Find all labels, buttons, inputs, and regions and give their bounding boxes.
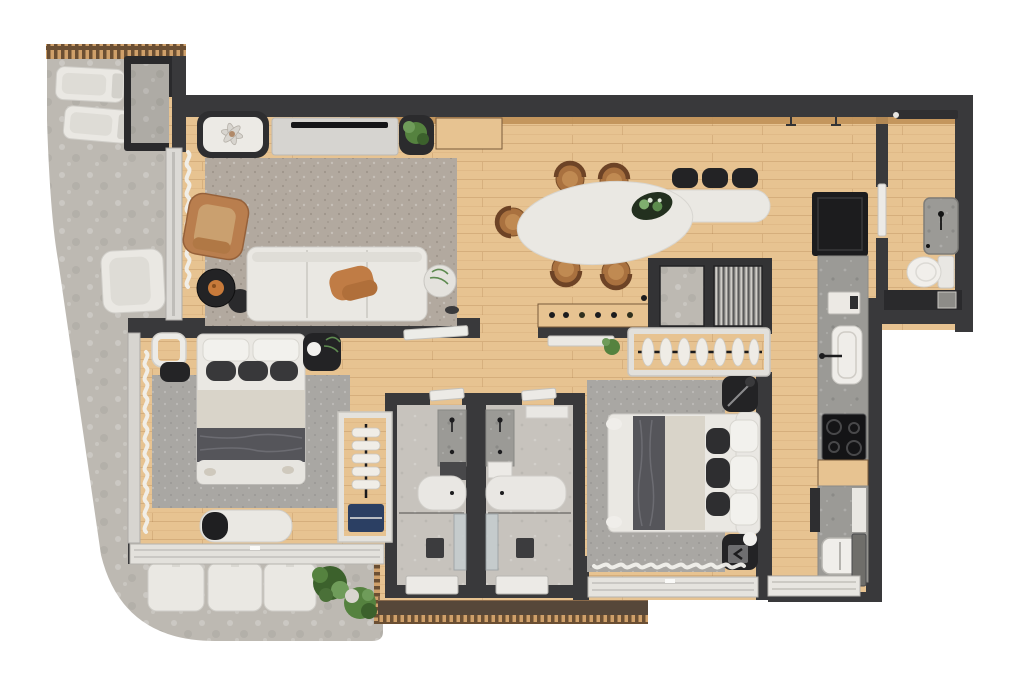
bedroom1-bed [197, 334, 305, 484]
bedroom1-window [128, 333, 140, 543]
kitchen [812, 192, 868, 486]
decor-niche [197, 111, 269, 158]
leather-armchair [181, 191, 251, 261]
bar-stools [672, 168, 758, 188]
powder-counter [884, 290, 962, 310]
bathroom-right-shelf [526, 406, 568, 418]
seat-cushions [148, 561, 316, 611]
planter-box [124, 56, 176, 151]
bathroom-right-shower-glass [486, 514, 498, 570]
bedroom1-bench [200, 510, 292, 542]
bathroom-left-window [406, 576, 458, 594]
ribbed-unit [714, 266, 762, 326]
bedroom2-curtain [594, 565, 744, 568]
console-planter [399, 115, 434, 155]
floor-plan-canvas [0, 0, 1024, 683]
living-window [166, 148, 182, 320]
bedroom2-clothes-rack [628, 328, 770, 376]
entry-door [893, 110, 958, 119]
bathroom-left [397, 388, 466, 594]
powder-door [878, 184, 886, 236]
living-room [166, 111, 502, 326]
bathroom-left-shower-glass [454, 514, 466, 570]
potted-plant [344, 587, 377, 619]
powder-washbasin [924, 198, 958, 254]
bathroom-right [486, 388, 573, 594]
bedroom1-wardrobe [338, 412, 392, 542]
cooktop [822, 414, 866, 460]
terrace-armchair [100, 248, 165, 313]
bedroom2-bed [606, 412, 760, 534]
technical-shaft [648, 258, 772, 334]
wood-shelf [436, 118, 502, 149]
bathroom-left-drain [426, 538, 444, 558]
service-tall-cabinet [852, 488, 866, 532]
small-appliance [828, 292, 860, 314]
bathroom-left-counter [418, 476, 466, 510]
refrigerator [812, 192, 868, 256]
bedroom2-window [588, 577, 758, 597]
tv-console [272, 118, 398, 155]
lounge-chair [55, 66, 125, 103]
deck-planter-strip [378, 596, 648, 624]
bathroom-right-counter [486, 476, 566, 510]
bathroom-right-window [496, 576, 548, 594]
kitchen-wood-cabinet [818, 460, 868, 486]
bedroom2-nightstand-top [722, 376, 758, 412]
lounge-chair [63, 105, 132, 144]
bathroom-right-drain [516, 538, 534, 558]
concrete-panel [660, 266, 704, 326]
modular-sofa [247, 247, 427, 321]
tv [291, 122, 388, 128]
service-window [768, 576, 860, 596]
powder-toilet [907, 256, 954, 288]
bedroom1-nightstand-right [303, 333, 341, 371]
floor-plan-svg [0, 0, 1024, 683]
bedroom1-bottom-window [130, 544, 384, 564]
